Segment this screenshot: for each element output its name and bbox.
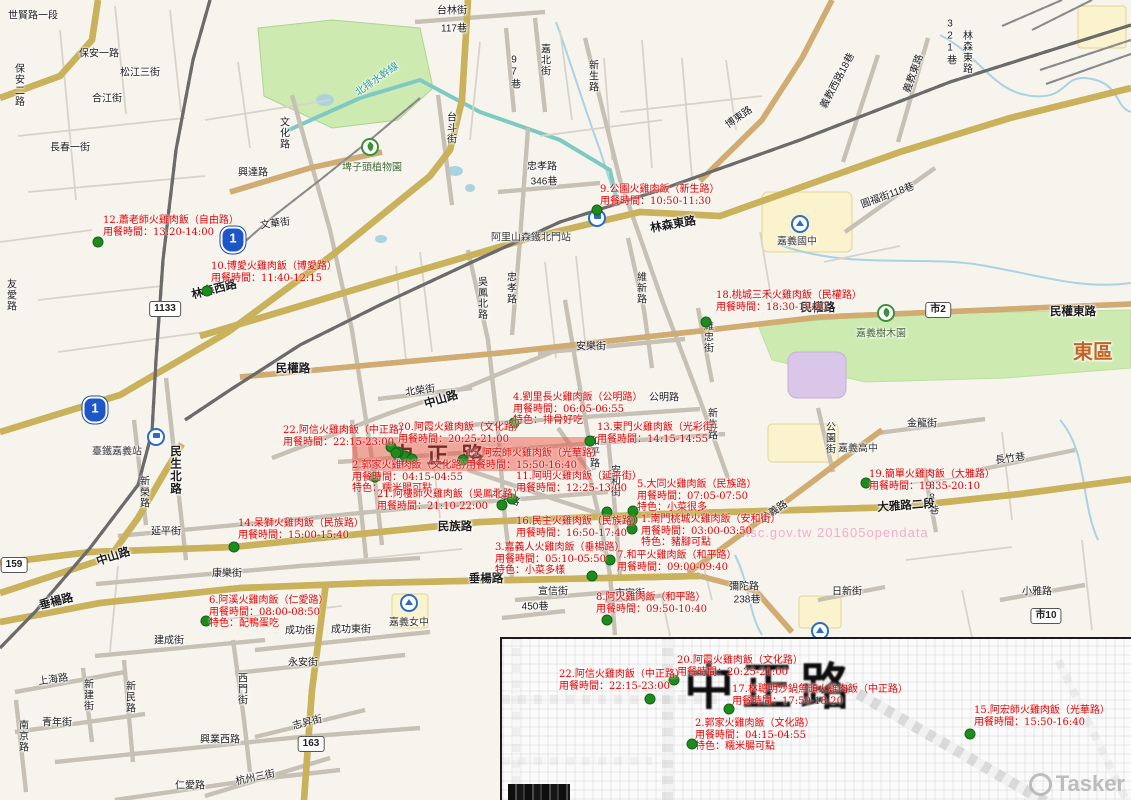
restaurant-dot [93, 237, 104, 248]
district-label: 東區 [1073, 336, 1113, 365]
street-label: 金龍街 [907, 415, 937, 430]
leaf-icon [877, 304, 895, 322]
street-label: 忠孝路 [503, 272, 518, 305]
street-label: 西門街 [234, 673, 249, 706]
restaurant-dot [645, 694, 656, 705]
botanical-garden-area [258, 20, 433, 128]
station-icon [147, 428, 165, 446]
leaf-icon [361, 138, 379, 156]
restaurant-annotation: 6.阿溪火雞肉飯（仁愛路） 用餐時間：08:00-08:50 特色：配鴨蛋吃 [209, 595, 329, 630]
restaurant-dot [391, 448, 402, 459]
street-label: 450巷 [522, 598, 549, 613]
street-label: 保安二路 [11, 63, 26, 107]
pond [465, 184, 475, 192]
street-label: 成功東街 [331, 621, 371, 636]
inset-road [662, 639, 673, 800]
street-label: 117巷 [441, 20, 467, 35]
route-shield: 市10 [1030, 608, 1061, 624]
street-label: 嘉北街 [537, 44, 552, 77]
street-label: 台林街 [437, 2, 467, 17]
restaurant-dot [701, 317, 712, 328]
street-label: 新榮路 [136, 476, 151, 509]
inset-map: 中正路 Tasker 2.郭家火雞肉飯（文化路） 用餐時間：04:15-04:5… [500, 637, 1131, 800]
restaurant-annotation: 21.阿樓師火雞肉飯（吳鳳北路） 用餐時間：21:10-22:00 [377, 489, 523, 512]
poi-area [1078, 6, 1126, 48]
restaurant-annotation: 20.阿霞火雞肉飯（文化路） 用餐時間：20:25-21:00 [677, 655, 803, 678]
station-label: 阿里山森鐵北門站 [491, 229, 571, 244]
street-label: 新民路 [122, 681, 137, 714]
street-label: 長春一街 [50, 139, 90, 154]
restaurant-dot [687, 739, 698, 750]
street-label: 346巷 [531, 173, 558, 188]
pond [375, 235, 387, 243]
restaurant-annotation: 15.阿宏師火雞肉飯（光華路） 用餐時間：15:50-16:40 [974, 705, 1110, 728]
street-label: 松江三街 [120, 64, 160, 79]
street-label: 青年街 [42, 714, 72, 729]
opendata-watermark: hsc.gov.tw 201605opendata [742, 525, 929, 540]
street-label: 永安街 [288, 654, 318, 669]
restaurant-dot [229, 542, 240, 553]
school-label: 嘉義國中 [777, 233, 817, 248]
street-label: 興業西路 [200, 731, 240, 746]
street-label: 台斗街 [443, 112, 458, 145]
street-label: 林森東路 [959, 30, 974, 74]
street-label: 吳鳳北路 [474, 276, 489, 320]
street-label: 新生路 [585, 60, 600, 93]
street-label: 宣信街 [538, 583, 568, 598]
street-label: 小雅路 [1022, 583, 1052, 598]
street-label: 321巷 [943, 19, 958, 66]
park-purple-area [788, 352, 846, 398]
school-icon [791, 215, 809, 233]
tasker-brand-text: Tasker [1056, 772, 1125, 796]
tasker-logo-icon [1029, 773, 1052, 796]
school-icon [400, 594, 418, 612]
street-label: 興達路 [238, 164, 268, 179]
restaurant-annotation: 22.阿信火雞肉飯（中正路） 用餐時間：22:15-23:00 [283, 425, 409, 448]
park-label: 埤子頭植物園 [342, 159, 402, 174]
street-label: 延平街 [151, 523, 181, 538]
restaurant-annotation: 9.公園火雞肉飯（新生路） 用餐時間：10:50-11:30 [600, 184, 720, 207]
street-label: 世賢路一段 [8, 7, 58, 22]
street-label: 維新路 [633, 272, 648, 305]
street-label: 友愛路 [3, 279, 18, 312]
restaurant-annotation: 18.桃城三禾火雞肉飯（民權路） 用餐時間：18:30-19:20 [716, 290, 862, 313]
restaurant-annotation: 3.嘉義人火雞肉飯（垂楊路） 用餐時間：05:10-05:50 特色：小菜多樣 [495, 542, 625, 577]
park-label: 嘉義樹木園 [856, 325, 906, 340]
street-label: 文化路 [276, 117, 291, 150]
restaurant-annotation: 11.阿明火雞肉飯（延平街） 用餐時間：12:25-13:00 [516, 471, 642, 494]
street-label: 保安一路 [79, 45, 119, 60]
map-screenshot: 世賢路一段保安一路保安二路松江三街合江街長春一街文化路興達路文華街友愛路北排水幹… [0, 0, 1131, 800]
restaurant-annotation: 8.阿火雞肉飯（和平路） 用餐時間：09:50-10:40 [596, 592, 707, 615]
route-shield: 159 [1, 557, 28, 573]
highway-shield: 1 [83, 397, 108, 424]
restaurant-annotation: 12.蕭老師火雞肉飯（自由路） 用餐時間：13:20-14:00 [103, 215, 239, 238]
inset-road [502, 757, 652, 765]
restaurant-dot [724, 704, 735, 715]
street-label: 公園街 [822, 422, 837, 455]
restaurant-annotation: 15.阿宏師火雞肉飯（光華路） 用餐時間：15:50-16:40 [466, 448, 602, 471]
restaurant-annotation: 5.大同火雞肉飯（民族路） 用餐時間：07:05-07:50 特色：小菜很多 [637, 479, 757, 514]
street-label: 仁愛路 [175, 777, 205, 792]
restaurant-annotation: 7.和平火雞肉飯（和平路） 用餐時間：09:00-09:40 [617, 550, 737, 573]
street-label: 民族路 [438, 518, 473, 534]
inset-road [512, 639, 520, 800]
street-label: 安樂街 [576, 338, 606, 353]
street-label: 建成街 [154, 632, 184, 647]
route-shield: 市2 [925, 302, 951, 318]
restaurant-annotation: 13.東門火雞肉飯（光彩街） 用餐時間：14:15-14:55 [597, 422, 723, 445]
school-label: 嘉義女中 [389, 614, 429, 629]
school-label: 嘉義高中 [838, 440, 878, 455]
restaurant-annotation: 14.呆獅火雞肉飯（民族路） 用餐時間：15:00-15:40 [238, 518, 364, 541]
restaurant-annotation: 2.郭家火雞肉飯（文化路） 用餐時間：04:15-04:55 特色：糯米腸可點 [695, 718, 815, 753]
street-label: 民權路 [276, 360, 311, 376]
restaurant-dot [602, 615, 613, 626]
restaurant-annotation: 19.簡單火雞肉飯（大雅路） 用餐時間：19:35-20:10 [869, 469, 995, 492]
street-label: 日新街 [832, 583, 862, 598]
restaurant-annotation: 17.林聰明沙鍋魚頭火雞肉飯（中正路） 用餐時間：17:50-18:20 [732, 684, 908, 707]
street-label: 忠孝路 [527, 158, 557, 173]
street-label: 康樂街 [212, 565, 242, 580]
inset-pixelated-label [508, 784, 570, 800]
street-label: 新建街 [80, 679, 95, 712]
street-label: 民生北路 [167, 445, 183, 495]
restaurant-annotation: 22.阿信火雞肉飯（中正路） 用餐時間：22:15-23:00 [559, 669, 685, 692]
street-label: 民權東路 [1050, 303, 1096, 319]
restaurant-annotation: 16.民主火雞肉飯（民族路） 用餐時間：16:50-17:40 [516, 516, 642, 539]
street-label: 南京路 [15, 720, 30, 753]
route-shield: 163 [298, 736, 325, 752]
restaurant-dot [965, 729, 976, 740]
tasker-watermark: Tasker [1029, 772, 1125, 796]
street-label: 97巷 [507, 55, 522, 90]
station-label: 臺鐵嘉義站 [92, 443, 142, 458]
restaurant-dot [202, 286, 213, 297]
restaurant-annotation: 20.阿霞火雞肉飯（文化路） 用餐時間：20:25-21:00 [398, 422, 524, 445]
restaurant-dot [585, 436, 596, 447]
route-shield: 1133 [149, 301, 181, 317]
street-label: 238巷 [734, 591, 761, 606]
restaurant-annotation: 10.博愛火雞肉飯（博愛路） 用餐時間：11:40-12:15 [211, 261, 337, 284]
street-label: 合江街 [92, 90, 122, 105]
street-label: 公明路 [649, 389, 679, 404]
